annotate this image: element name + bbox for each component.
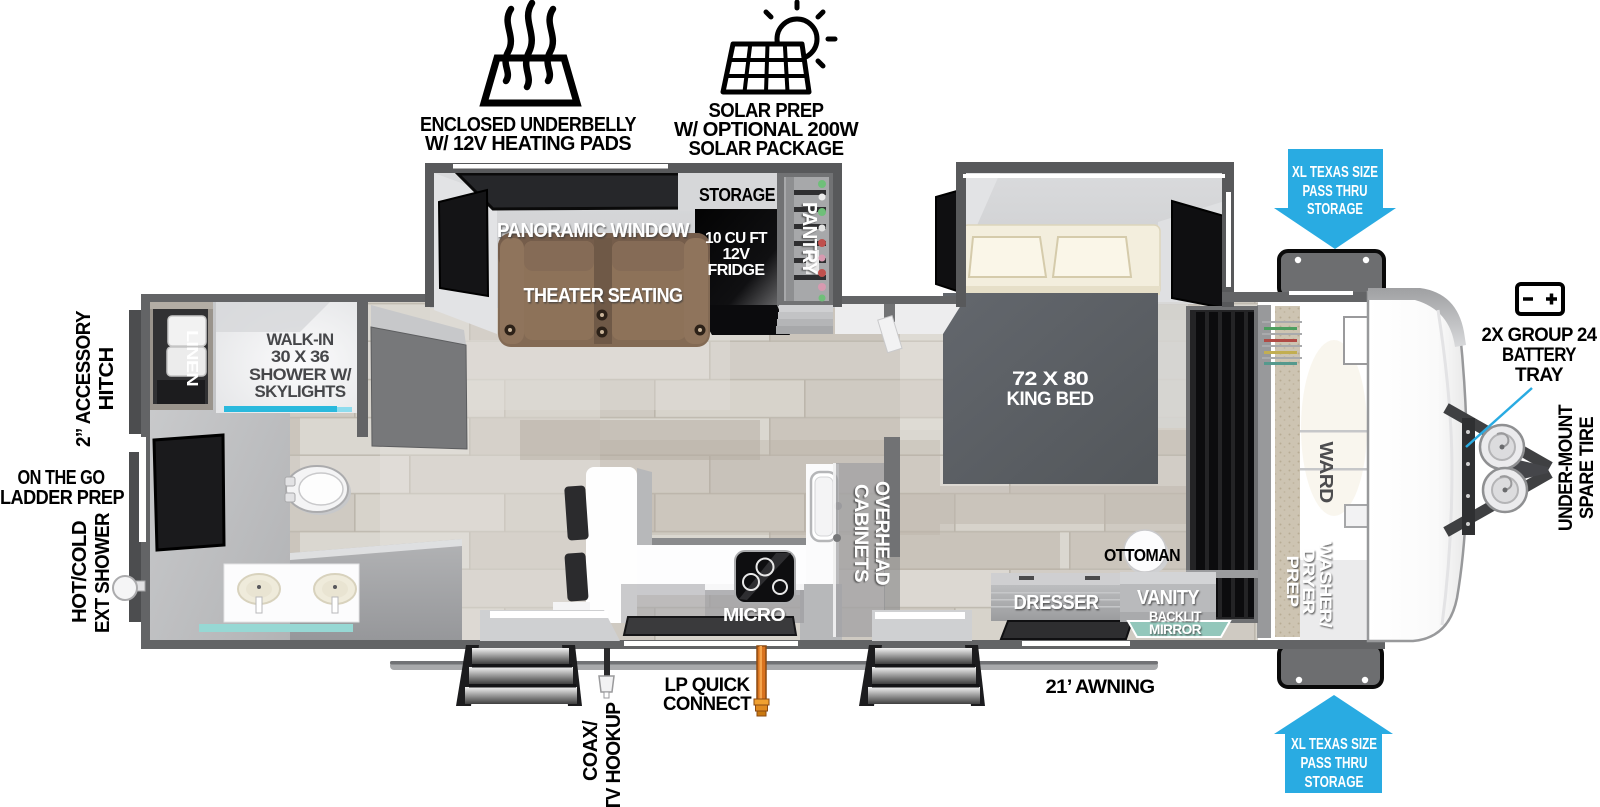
svg-text:HOT/COLD: HOT/COLD bbox=[69, 521, 91, 623]
svg-text:2” ACCESSORY: 2” ACCESSORY bbox=[73, 310, 95, 447]
svg-text:PASS THRU: PASS THRU bbox=[1303, 183, 1368, 200]
svg-text:OTTOMAN: OTTOMAN bbox=[1104, 545, 1180, 565]
svg-text:SPARE TIRE: SPARE TIRE bbox=[1576, 416, 1598, 519]
svg-text:XL TEXAS SIZE: XL TEXAS SIZE bbox=[1292, 164, 1378, 181]
svg-text:STORAGE: STORAGE bbox=[1305, 774, 1364, 791]
svg-text:CABINETS: CABINETS bbox=[850, 484, 871, 582]
svg-text:UNDER-MOUNT: UNDER-MOUNT bbox=[1555, 404, 1577, 531]
svg-text:30 X 36: 30 X 36 bbox=[271, 347, 329, 366]
svg-text:72 X 80: 72 X 80 bbox=[1012, 368, 1089, 390]
svg-text:CONNECT: CONNECT bbox=[663, 693, 752, 715]
svg-text:2X GROUP 24: 2X GROUP 24 bbox=[1482, 324, 1598, 346]
svg-text:MICRO: MICRO bbox=[723, 604, 785, 625]
svg-text:FRIDGE: FRIDGE bbox=[708, 262, 766, 279]
svg-text:21’ AWNING: 21’ AWNING bbox=[1046, 676, 1155, 698]
svg-text:STORAGE: STORAGE bbox=[1307, 201, 1363, 218]
svg-text:SOLAR PACKAGE: SOLAR PACKAGE bbox=[689, 137, 844, 160]
svg-text:PANTRY: PANTRY bbox=[798, 202, 820, 275]
svg-text:PASS THRU: PASS THRU bbox=[1301, 755, 1368, 772]
svg-text:PREP: PREP bbox=[1283, 556, 1301, 608]
svg-text:12V: 12V bbox=[723, 246, 751, 263]
svg-text:XL TEXAS SIZE: XL TEXAS SIZE bbox=[1291, 736, 1377, 753]
svg-text:THEATER SEATING: THEATER SEATING bbox=[524, 285, 683, 307]
svg-text:COAX/: COAX/ bbox=[580, 720, 602, 781]
svg-text:10 CU FT: 10 CU FT bbox=[705, 230, 768, 247]
svg-text:OVERHEAD: OVERHEAD bbox=[871, 481, 892, 585]
svg-text:LADDER PREP: LADDER PREP bbox=[0, 487, 124, 509]
svg-text:EXT SHOWER: EXT SHOWER bbox=[92, 512, 114, 633]
svg-text:TRAY: TRAY bbox=[1515, 364, 1564, 386]
svg-text:WARD: WARD bbox=[1316, 442, 1336, 504]
svg-text:ON THE GO: ON THE GO bbox=[18, 467, 105, 489]
svg-text:LINEN: LINEN bbox=[183, 330, 200, 387]
svg-text:DRESSER: DRESSER bbox=[1014, 592, 1100, 614]
svg-text:SKYLIGHTS: SKYLIGHTS bbox=[255, 382, 346, 401]
svg-text:STORAGE: STORAGE bbox=[699, 184, 775, 205]
svg-text:BATTERY: BATTERY bbox=[1502, 344, 1577, 366]
svg-text:MIRROR: MIRROR bbox=[1149, 621, 1201, 637]
svg-text:W/ 12V HEATING PADS: W/ 12V HEATING PADS bbox=[425, 132, 631, 155]
svg-text:VANITY: VANITY bbox=[1137, 587, 1200, 609]
svg-text:TV HOOKUP: TV HOOKUP bbox=[603, 702, 625, 807]
svg-text:WASHER/: WASHER/ bbox=[1316, 541, 1334, 628]
svg-text:KING BED: KING BED bbox=[1007, 388, 1094, 410]
svg-text:PANORAMIC WINDOW: PANORAMIC WINDOW bbox=[497, 220, 690, 242]
svg-text:HITCH: HITCH bbox=[96, 347, 118, 410]
